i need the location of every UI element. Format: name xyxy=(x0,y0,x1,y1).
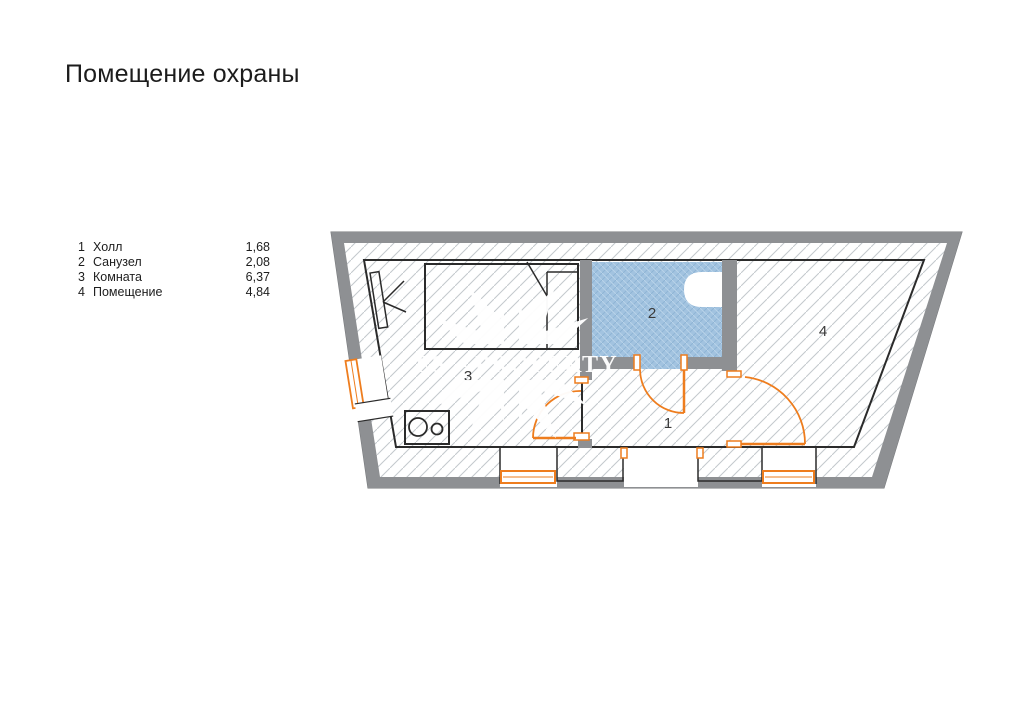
porch-opening-gap xyxy=(624,447,698,487)
door-jamb xyxy=(621,448,627,458)
page: Помещение охраны 1 Холл 1,68 2 Санузел 2… xyxy=(0,0,1027,726)
room-label-hall: 1 xyxy=(664,415,672,432)
bathroom-door-gap-floor xyxy=(640,357,683,369)
bathroom-bottom-wall xyxy=(683,357,722,369)
door-jamb xyxy=(634,355,640,370)
door-jamb xyxy=(681,355,687,370)
door-jamb xyxy=(727,441,741,447)
bathroom-right-wall xyxy=(722,260,737,371)
door-jamb xyxy=(574,433,589,440)
door-jamb xyxy=(727,371,741,377)
door-jamb xyxy=(697,448,703,458)
floor-plan: 1 2 3 4 FS – PROPERTY xyxy=(0,0,1027,726)
room-label-bathroom: 2 xyxy=(648,305,656,322)
bathtub-sink-icon xyxy=(684,272,722,307)
room-label-premise: 4 xyxy=(819,323,827,340)
watermark-text: FS – PROPERTY xyxy=(416,352,619,378)
